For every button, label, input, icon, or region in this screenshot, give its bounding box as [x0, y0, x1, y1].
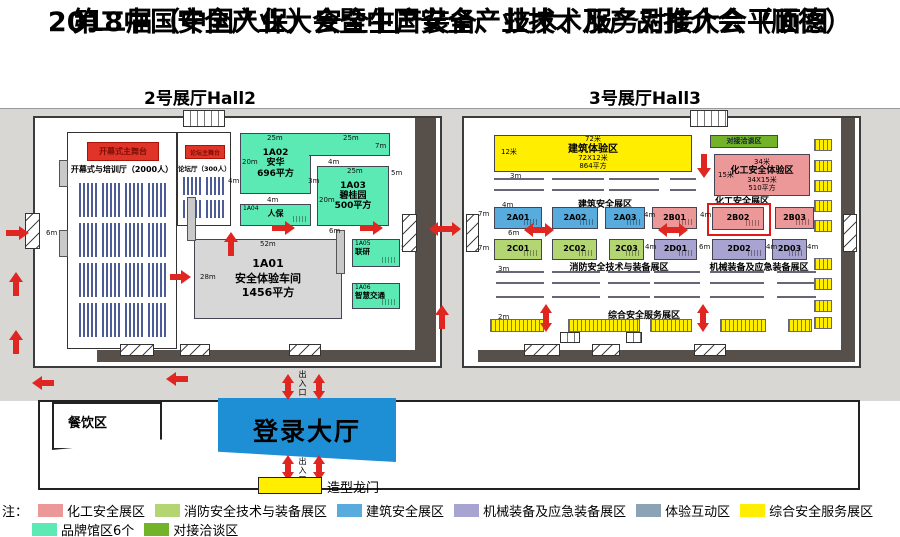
- booth-strip: [670, 178, 696, 180]
- training-hall-label: 开幕式与培训厅（2000人）: [69, 164, 175, 175]
- door-icon: [592, 344, 620, 356]
- booth-strip: [777, 296, 816, 298]
- arrow-double-v-icon: [697, 304, 709, 332]
- door-icon: [843, 214, 857, 252]
- floor-plan: 2018中国安全产业大会暨中国安全产业技术及产品推介会（顺德） 第二届（中国人保…: [0, 0, 900, 537]
- arrow-right-icon: [6, 226, 29, 240]
- booth-2C01: 2C01: [494, 239, 542, 260]
- legend-swatch: [155, 504, 180, 517]
- booth-1A06: 1A06 智慧交通: [352, 283, 400, 309]
- booth-strip: [496, 282, 544, 284]
- hall3-label: 3号展厅Hall3: [555, 84, 735, 109]
- legend-item: 体验互动区: [636, 501, 730, 520]
- training-seating: [79, 183, 169, 341]
- forum-stage-banner: 论坛主舞台: [185, 145, 225, 159]
- dining-label: 餐饮区: [68, 412, 107, 431]
- booth-strip: [494, 189, 544, 191]
- negotiation-zone: 对接洽谈区: [710, 135, 778, 148]
- building-experience-zone: 72米 建筑体验区 72X12米 864平方 12米: [494, 135, 692, 172]
- arrow-up-icon: [224, 232, 238, 256]
- booth-strip: [814, 317, 832, 329]
- booth-2C03: 2C03: [609, 239, 644, 260]
- arrow-left-icon: [166, 372, 188, 386]
- booth-strip: [814, 220, 832, 232]
- legend-item: 对接洽谈区: [144, 520, 238, 537]
- gantry-gate: [258, 477, 322, 494]
- legend-row-2: 品牌馆区6个 对接洽谈区: [32, 520, 238, 537]
- booth-strip: [814, 258, 832, 270]
- booth-strip: [608, 282, 650, 284]
- arrow-double-h-icon: [658, 223, 688, 237]
- arrow-right-icon: [272, 221, 295, 235]
- booth-strip: [788, 319, 812, 332]
- booth-strip: [552, 189, 604, 191]
- booth-2C02: 2C02: [552, 239, 597, 260]
- legend-prefix: 注：: [2, 501, 28, 520]
- wall-label-box: [183, 110, 225, 127]
- booth-strip: [814, 278, 832, 290]
- login-hall: 登录大厅: [218, 398, 396, 462]
- arrow-double-v-icon: [540, 304, 552, 332]
- door-icon: [120, 344, 154, 356]
- training-hall: 开幕式主舞台 开幕式与培训厅（2000人）: [67, 132, 177, 349]
- legend-swatch: [636, 504, 661, 517]
- arrow-down-icon: [697, 152, 711, 178]
- door-icon: [466, 214, 479, 252]
- pillar: [59, 230, 68, 257]
- booth-strip: [654, 271, 700, 273]
- booth-strip: [710, 296, 764, 298]
- door-icon: [289, 344, 321, 356]
- arrow-up-icon: [435, 305, 449, 331]
- page-title-line2: 第二届（中国人保）安全生产装备、技术、服务对接大会平面图: [0, 0, 900, 39]
- booth-2A02: 2A02: [552, 207, 598, 229]
- legend-swatch: [337, 504, 362, 517]
- gantry-gate-label: 造型龙门: [327, 477, 379, 496]
- booth-strip: [777, 271, 816, 273]
- door-icon: [402, 214, 417, 252]
- booth-strip: [710, 271, 764, 273]
- booth-2A03: 2A03: [605, 207, 645, 229]
- hall2-label: 2号展厅Hall2: [110, 84, 290, 109]
- chemical-experience-zone: 34米 化工安全体验区 34X15米 510平方 15米: [714, 154, 810, 196]
- main-stage-banner: 开幕式主舞台: [87, 142, 159, 161]
- wall-label-box: [626, 332, 642, 343]
- booth-strip: [777, 282, 816, 284]
- booth-strip: [552, 271, 600, 273]
- legend-item: 消防安全技术与装备展区: [155, 501, 327, 520]
- arrow-up-icon: [9, 272, 23, 297]
- forum-hall-label: 论坛厅（300人）: [178, 163, 230, 173]
- booth-strip: [814, 139, 832, 151]
- booth-strip: [568, 319, 640, 332]
- arrow-left-icon: [32, 376, 54, 390]
- door-icon: [524, 344, 560, 356]
- booth-2B03: 2B03: [775, 207, 814, 229]
- booth-2D01: 2D01: [654, 239, 697, 260]
- arrow-double-h-icon: [429, 222, 461, 236]
- legend-swatch: [454, 504, 479, 517]
- booth-1A01: 1A01 安全体验车间 1456平方: [194, 239, 342, 319]
- legend-swatch: [740, 504, 765, 517]
- forum-hall: 论坛主舞台 论坛厅（300人）: [177, 132, 231, 226]
- booth-strip: [552, 282, 600, 284]
- door-icon: [694, 344, 726, 356]
- hall2-right-wall: [415, 118, 436, 362]
- door-icon: [180, 344, 210, 356]
- hall3: 72米 建筑体验区 72X12米 864平方 12米 对接洽谈区 34米 化工安…: [462, 116, 861, 368]
- wall-label-box: [560, 332, 580, 343]
- booth-strip: [552, 296, 600, 298]
- booth-strip: [650, 319, 692, 332]
- booth-1A05: 1A05 联研: [352, 239, 400, 267]
- arrow-double-v-icon: [282, 374, 294, 400]
- booth-strip: [720, 319, 766, 332]
- pillar: [59, 160, 68, 187]
- booth-strip: [814, 200, 832, 212]
- booth-strip: [654, 282, 700, 284]
- pillar: [187, 197, 196, 241]
- pillar: [336, 230, 345, 274]
- booth-strip: [496, 296, 544, 298]
- booth-strip: [552, 178, 604, 180]
- legend-item: 机械装备及应急装备展区: [454, 501, 626, 520]
- legend-row-1: 注： 化工安全展区 消防安全技术与装备展区 建筑安全展区 机械装备及应急装备展区…: [2, 501, 873, 520]
- booth-strip: [609, 189, 659, 191]
- booth-strip: [814, 300, 832, 312]
- booth-strip: [670, 189, 696, 191]
- legend-item: 综合安全服务展区: [740, 501, 873, 520]
- booth-strip: [608, 296, 650, 298]
- booth-strip: [814, 180, 832, 192]
- legend-item: 建筑安全展区: [337, 501, 444, 520]
- booth-strip: [710, 282, 764, 284]
- legend-swatch: [144, 523, 169, 536]
- booth-2D02: 2D02: [712, 239, 766, 260]
- legend-item: 化工安全展区: [38, 501, 145, 520]
- booth-strip: [814, 160, 832, 172]
- arrow-up-icon: [9, 330, 23, 355]
- arrow-double-v-icon: [313, 374, 325, 400]
- arrow-right-icon: [360, 221, 383, 235]
- legend-swatch: [32, 523, 57, 536]
- booth-strip: [608, 271, 650, 273]
- arrow-double-h-icon: [524, 223, 554, 237]
- legend-swatch: [38, 504, 63, 517]
- highlight-2B02: [707, 203, 771, 236]
- wall-label-box: [690, 110, 728, 127]
- booth-strip: [654, 296, 700, 298]
- legend-item: 品牌馆区6个: [32, 520, 134, 537]
- booth-strip: [609, 178, 659, 180]
- entrance-label-top: 出入口: [297, 370, 308, 397]
- arrow-right-icon: [170, 270, 191, 283]
